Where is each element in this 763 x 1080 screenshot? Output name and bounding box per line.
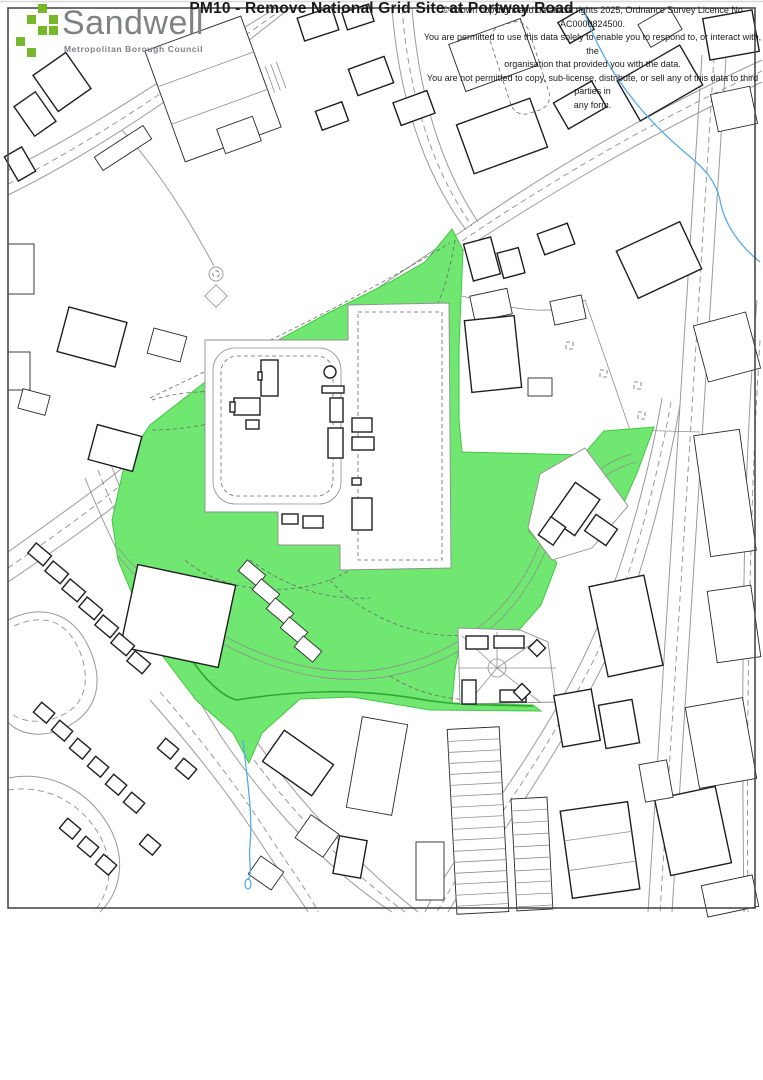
sandwell-logo: Sandwell Metropolitan Borough Council [16, 4, 226, 64]
sandwell-logo-squares-icon [16, 4, 62, 60]
mini-roundabout [209, 267, 223, 281]
logo-square [49, 15, 58, 24]
terraced-strip [511, 797, 553, 911]
site-location-map [0, 0, 763, 920]
cul-de-sac-area [458, 628, 556, 704]
logo-square [16, 37, 25, 46]
copyright-line: © Crown copyright and database rights 20… [420, 4, 763, 31]
footer: Sandwell Metropolitan Borough Council © … [0, 0, 763, 82]
logo-square [27, 48, 36, 57]
copyright-line: any form. [420, 99, 763, 113]
page: PM10 - Remove National Grid Site at Port… [0, 0, 763, 1080]
terraced-strip [447, 727, 509, 914]
logo-subtitle: Metropolitan Borough Council [64, 44, 203, 54]
map-canvas [0, 0, 763, 920]
logo-square [38, 26, 47, 35]
logo-square [27, 15, 36, 24]
logo-square [49, 26, 58, 35]
copyright-notice: © Crown copyright and database rights 20… [420, 4, 763, 112]
copyright-line: organisation that provided you with the … [420, 58, 763, 72]
logo-name: Sandwell [62, 4, 204, 43]
logo-square [38, 4, 47, 13]
copyright-line: You are not permitted to copy, sub-licen… [420, 72, 763, 99]
copyright-line: You are permitted to use this data solel… [420, 31, 763, 58]
